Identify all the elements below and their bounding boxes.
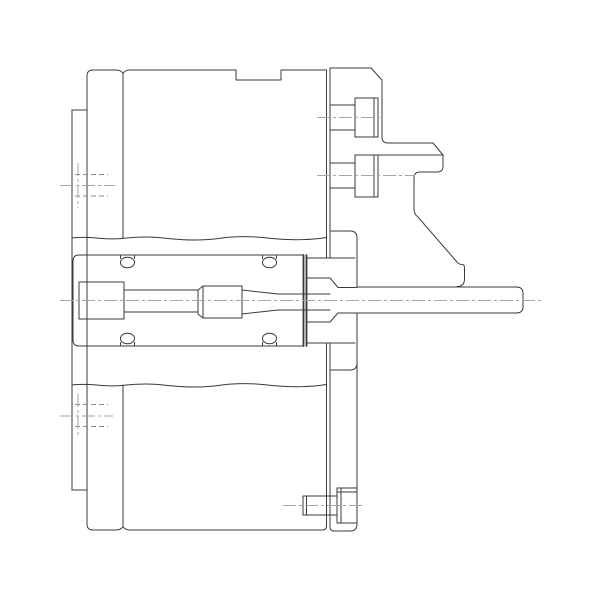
break-lines [72,237,326,387]
o-ring-top-left [121,257,135,268]
drawing-canvas [0,0,600,600]
stopper-bracket [330,68,465,287]
adapter-plate-joint [327,68,331,527]
o-ring-bottom-left [121,333,135,344]
technical-drawing [0,0,600,600]
base-plate-bottom [330,524,357,531]
o-ring-bottom-right [263,333,277,344]
shaft-hub [331,231,357,488]
o-ring-top-right [263,257,277,268]
